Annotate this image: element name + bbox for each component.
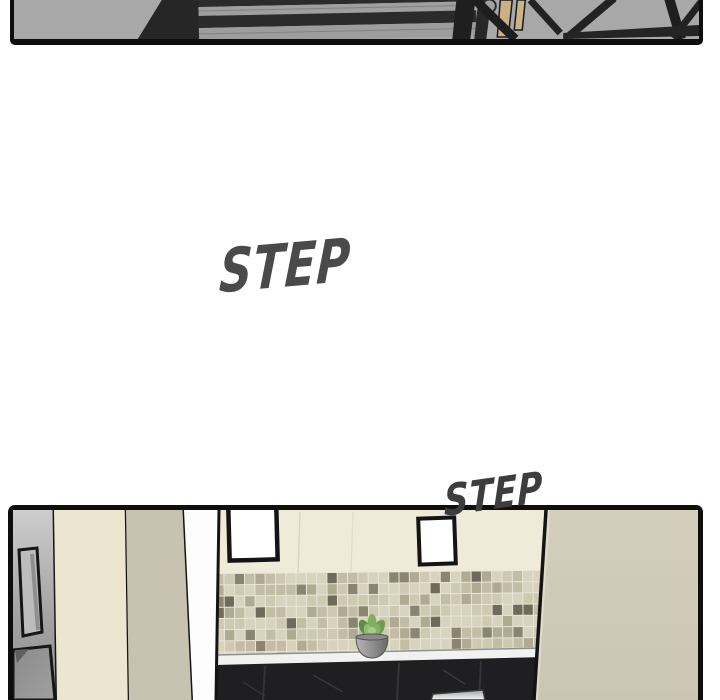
mosaic-tile <box>328 618 337 628</box>
mosaic-tile <box>492 582 501 592</box>
mosaic-tile <box>472 583 481 593</box>
mosaic-tile <box>225 585 234 595</box>
mosaic-tile <box>410 583 419 593</box>
mosaic-tile <box>287 641 296 651</box>
mosaic-tile <box>266 607 275 617</box>
pillar-tan <box>126 510 193 700</box>
mosaic-tile <box>358 584 367 594</box>
mosaic-tile <box>482 594 491 604</box>
mosaic-tile <box>472 605 481 615</box>
mosaic-tile <box>266 618 275 628</box>
mosaic-tile <box>235 630 244 640</box>
mosaic-tile <box>431 605 440 615</box>
mosaic-tile <box>266 630 275 640</box>
mosaic-tile <box>245 574 254 584</box>
mosaic-tile <box>235 574 244 584</box>
mosaic-tile <box>472 594 481 604</box>
mosaic-tile <box>389 572 398 582</box>
mosaic-tile <box>276 629 285 639</box>
mosaic-tile <box>256 596 265 606</box>
mosaic-tile <box>276 585 285 595</box>
mosaic-tile <box>276 596 285 606</box>
mosaic-tile <box>493 616 502 626</box>
mosaic-tile <box>513 627 522 637</box>
mosaic-tile <box>452 628 461 638</box>
mosaic-tile <box>225 641 234 651</box>
mosaic-tile <box>235 596 244 606</box>
mosaic-tile <box>297 640 306 650</box>
mosaic-tile <box>430 572 439 582</box>
mosaic-tile <box>296 573 305 583</box>
mosaic-tile <box>503 605 512 615</box>
mosaic-tile <box>379 595 388 605</box>
mosaic-tile <box>461 583 470 593</box>
mosaic-tile <box>276 607 285 617</box>
mosaic-tile <box>451 594 460 604</box>
mosaic-tile <box>410 617 419 627</box>
mosaic-tile <box>328 629 337 639</box>
mosaic-tile <box>348 618 357 628</box>
mosaic-tile <box>524 627 533 637</box>
mosaic-tile <box>523 593 532 603</box>
mosaic-tile <box>493 638 502 648</box>
mosaic-tile <box>255 574 264 584</box>
mosaic-tile <box>400 583 409 593</box>
plant-pot-rim <box>356 634 388 640</box>
mosaic-tile <box>502 571 511 581</box>
mosaic-tile <box>369 584 378 594</box>
mosaic-tile <box>452 639 461 649</box>
mosaic-tile <box>287 629 296 639</box>
mosaic-tile <box>379 572 388 582</box>
mosaic-tile <box>297 584 306 594</box>
mosaic-tile <box>297 629 306 639</box>
mosaic-tile <box>307 584 316 594</box>
mosaic-tile <box>400 628 409 638</box>
mosaic-tile <box>245 619 254 629</box>
mosaic-tile <box>410 628 419 638</box>
mosaic-tile <box>276 573 285 583</box>
mosaic-tile <box>441 583 450 593</box>
mosaic-tile <box>472 639 481 649</box>
mosaic-tile <box>297 607 306 617</box>
mosaic-tile <box>369 595 378 605</box>
mosaic-tile <box>462 594 471 604</box>
door-face <box>534 510 698 700</box>
mosaic-tile <box>338 584 347 594</box>
open-door <box>534 510 698 700</box>
mosaic-tile <box>225 596 234 606</box>
mosaic-tile <box>318 618 327 628</box>
mosaic-tile <box>482 616 491 626</box>
mosaic-tile <box>390 640 399 650</box>
mosaic-tile <box>297 596 306 606</box>
mosaic-tile <box>399 572 408 582</box>
mosaic-tile <box>266 574 275 584</box>
mosaic-tile <box>441 639 450 649</box>
stair-treads <box>198 0 476 39</box>
mosaic-tile <box>523 571 532 581</box>
mosaic-tile <box>235 585 244 595</box>
mosaic-tile <box>410 572 419 582</box>
mosaic-tile <box>421 628 430 638</box>
mosaic-tile <box>441 628 450 638</box>
mosaic-tile <box>441 572 450 582</box>
mosaic-tile <box>379 606 388 616</box>
mosaic-tile <box>245 607 254 617</box>
mosaic-tile <box>513 593 522 603</box>
mosaic-tile <box>287 618 296 628</box>
frame-canvas <box>228 510 277 561</box>
mosaic-tile <box>338 606 347 616</box>
mosaic-tile <box>503 627 512 637</box>
mosaic-tile <box>307 573 316 583</box>
mosaic-tile <box>410 594 419 604</box>
pillar-cream <box>54 510 129 700</box>
mosaic-tile <box>256 630 265 640</box>
mosaic-tile <box>318 640 327 650</box>
mosaic-tile <box>482 605 491 615</box>
mosaic-tile <box>523 605 532 615</box>
mosaic-tile <box>348 573 357 583</box>
mosaic-tile <box>225 619 234 629</box>
mosaic-tile <box>462 628 471 638</box>
mosaic-tile <box>245 585 254 595</box>
mosaic-tile <box>328 595 337 605</box>
mosaic-tile <box>493 627 502 637</box>
mosaic-tile <box>266 585 275 595</box>
mosaic-tile <box>359 606 368 616</box>
mosaic-tile <box>317 607 326 617</box>
fridge <box>13 510 57 700</box>
mosaic-tile <box>441 617 450 627</box>
mosaic-tile <box>431 594 440 604</box>
mosaic-tile <box>462 639 471 649</box>
mosaic-tile <box>338 640 347 650</box>
mosaic-tile <box>307 607 316 617</box>
mosaic-tile <box>420 606 429 616</box>
mosaic-tile <box>358 573 367 583</box>
mosaic-tile <box>503 582 512 592</box>
mosaic-tile <box>390 606 399 616</box>
mosaic-tile <box>451 616 460 626</box>
mosaic-tile <box>431 639 440 649</box>
mosaic-tile <box>338 618 347 628</box>
mosaic-tile <box>389 595 398 605</box>
mosaic-tile <box>245 596 254 606</box>
succulent-plant <box>356 614 388 658</box>
mosaic-tile <box>297 618 306 628</box>
mosaic-tile <box>472 616 481 626</box>
mosaic-tile <box>410 606 419 616</box>
mosaic-tile <box>472 627 481 637</box>
mosaic-tile <box>400 595 409 605</box>
mosaic-tile <box>328 607 337 617</box>
mosaic-tile <box>235 608 244 618</box>
mosaic-tile <box>246 630 255 640</box>
mosaic-tile <box>513 571 522 581</box>
mosaic-tile <box>462 605 471 615</box>
mosaic-tile <box>317 595 326 605</box>
mosaic-tile <box>451 583 460 593</box>
mosaic-tile <box>317 573 326 583</box>
mosaic-tile <box>483 639 492 649</box>
mosaic-tile <box>431 617 440 627</box>
mosaic-tile <box>420 572 429 582</box>
mosaic-tile <box>493 605 502 615</box>
mosaic-tile <box>277 641 286 651</box>
mosaic-tile <box>461 572 470 582</box>
mosaic-tile <box>420 583 429 593</box>
mosaic-tile <box>472 571 481 581</box>
mosaic-tile <box>400 606 409 616</box>
comic-page: STEP <box>0 0 720 700</box>
mosaic-tile <box>431 628 440 638</box>
mosaic-tile <box>317 584 326 594</box>
mosaic-tile <box>513 582 522 592</box>
mosaic-tile <box>224 574 233 584</box>
mosaic-tile <box>307 596 316 606</box>
mosaic-tile <box>276 618 285 628</box>
mosaic-tile <box>513 605 522 615</box>
mosaic-tile <box>348 595 357 605</box>
mosaic-tile <box>338 595 347 605</box>
picture-frame-left <box>228 510 277 561</box>
mosaic-tile <box>513 616 522 626</box>
mosaic-tile <box>256 641 265 651</box>
kitchen-art <box>13 510 698 700</box>
mosaic-tile <box>225 630 234 640</box>
mosaic-tile <box>348 606 357 616</box>
mosaic-tile <box>235 619 244 629</box>
mosaic-tile <box>287 607 296 617</box>
mosaic-tile <box>328 640 337 650</box>
mosaic-tile <box>482 583 491 593</box>
mosaic-tile <box>482 627 491 637</box>
mosaic-tile <box>338 629 347 639</box>
mosaic-tile <box>307 640 316 650</box>
mosaic-tile <box>390 628 399 638</box>
mosaic-tile <box>441 605 450 615</box>
mosaic-tile <box>492 594 501 604</box>
mosaic-tile <box>513 638 522 648</box>
mosaic-tile <box>327 584 336 594</box>
mosaic-tile <box>451 572 460 582</box>
sfx-step-large: STEP <box>218 231 352 303</box>
mosaic-tile <box>503 638 512 648</box>
mosaic-tile <box>235 641 244 651</box>
mosaic-tile <box>390 617 399 627</box>
mosaic-tile <box>266 641 275 651</box>
mosaic-tile <box>421 639 430 649</box>
mosaic-tile <box>379 584 388 594</box>
mosaic-tile <box>523 582 532 592</box>
mosaic-tile <box>503 616 512 626</box>
panel-kitchen <box>8 505 703 700</box>
mosaic-tile <box>338 573 347 583</box>
mosaic-tile <box>246 641 255 651</box>
mosaic-tile <box>327 573 336 583</box>
mosaic-tile <box>286 596 295 606</box>
mosaic-tile <box>369 573 378 583</box>
mosaic-tile <box>430 583 439 593</box>
mosaic-tile <box>266 596 275 606</box>
mosaic-tile <box>400 639 409 649</box>
mosaic-tile <box>256 619 265 629</box>
mosaic-tile <box>286 573 295 583</box>
mosaic-tile <box>255 585 264 595</box>
mosaic-tile <box>400 617 409 627</box>
mosaic-tile <box>441 594 450 604</box>
mosaic-tile <box>524 616 533 626</box>
mosaic-tile <box>318 629 327 639</box>
mosaic-tile <box>524 638 533 648</box>
mosaic-tile <box>420 594 429 604</box>
mosaic-tile <box>307 618 316 628</box>
mosaic-tile <box>492 571 501 581</box>
mosaic-tile <box>482 571 491 581</box>
panel-staircase <box>10 0 703 45</box>
mosaic-tile <box>421 617 430 627</box>
mosaic-tile <box>348 584 357 594</box>
mosaic-tile <box>389 584 398 594</box>
staircase-art <box>14 0 699 39</box>
mosaic-tile <box>410 639 419 649</box>
mosaic-tile <box>286 585 295 595</box>
mosaic-tile <box>225 608 234 618</box>
mosaic-tile <box>451 605 460 615</box>
mosaic-tile <box>256 607 265 617</box>
mosaic-tile <box>307 629 316 639</box>
mosaic-tile <box>462 616 471 626</box>
mosaic-tile <box>503 594 512 604</box>
mosaic-tile <box>359 595 368 605</box>
